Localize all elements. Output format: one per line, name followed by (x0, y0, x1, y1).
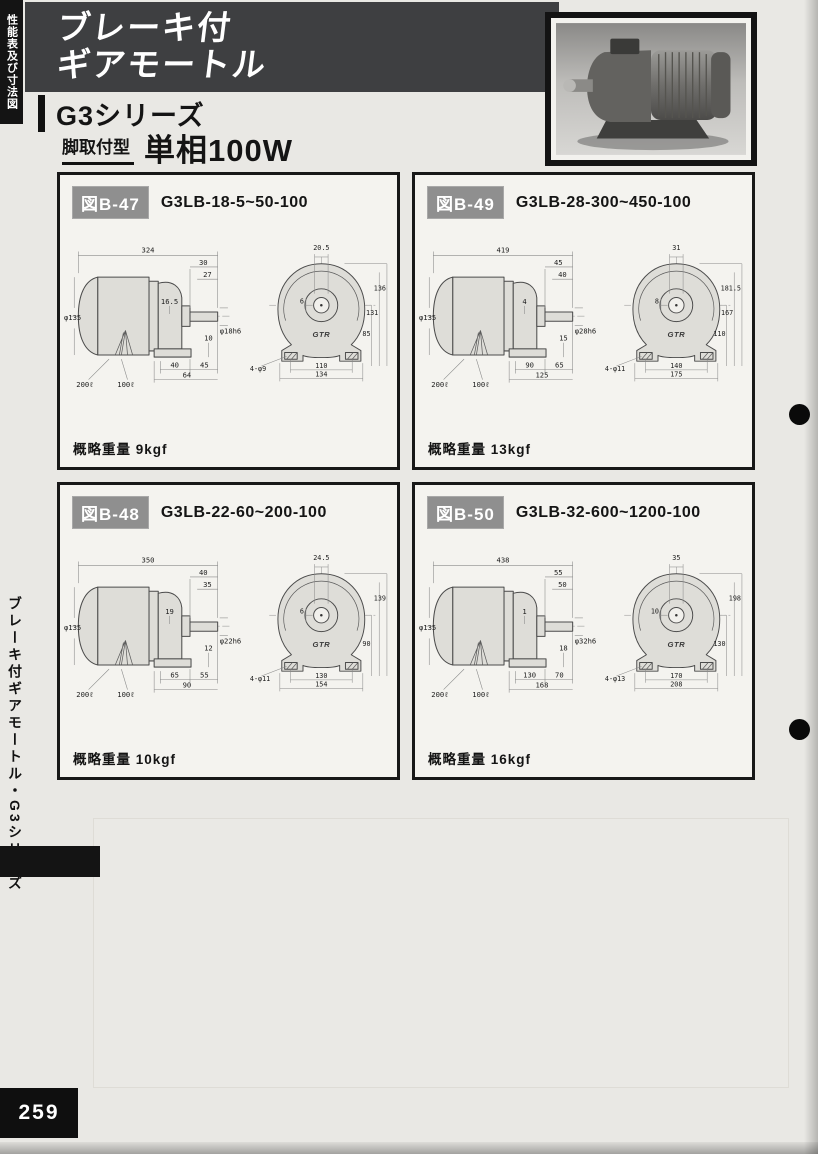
dim-motor-diameter: φ135 (419, 623, 436, 632)
dim-height-overall: 181.5 (721, 285, 741, 293)
dim-keyway-width: 31 (673, 244, 681, 252)
weight-note: 概略重量 10kgf (73, 748, 176, 768)
model-code: G3LB-22-60~200-100 (161, 504, 327, 522)
dim-foot-length: 64 (183, 371, 192, 380)
series-accent-bar (38, 95, 45, 132)
dim-foot-pitch: 65 (170, 670, 179, 679)
dim-height-mid: 131 (366, 309, 378, 317)
shaft-center (320, 614, 323, 617)
punch-hole-bottom (789, 719, 810, 740)
dim-base-width: 154 (316, 681, 328, 689)
dim-key-height: 8 (655, 297, 659, 305)
dim-shaft-step: 27 (203, 270, 212, 279)
dim-foot-length: 125 (535, 371, 548, 380)
dim-height-center: 85 (363, 330, 371, 338)
dim-foot-height: 12 (204, 644, 213, 653)
page-number: 259 (0, 1088, 78, 1138)
label-cable-200: 200ℓ (76, 690, 93, 699)
label-cable-200: 200ℓ (431, 690, 448, 699)
weight-value: 13kgf (491, 442, 531, 457)
gearbox-body (513, 592, 537, 659)
side-view-drawing: 350 40 35 19 φ135 12 φ22h6 65 55 90 200ℓ… (64, 543, 246, 701)
figure-number-badge: 図B-48 (72, 496, 149, 529)
dim-overall-length: 350 (142, 556, 155, 565)
dim-shaft-length: 40 (199, 568, 208, 577)
mounting-foot (509, 349, 546, 357)
label-cable-200: 200ℓ (76, 380, 93, 389)
figure-header: 図B-47 G3LB-18-5~50-100 (72, 186, 385, 219)
page-edge-bottom (0, 1142, 818, 1154)
motor-rear-cover (433, 277, 452, 355)
dim-foot-height: 15 (559, 334, 568, 343)
page-edge-right (804, 0, 818, 1154)
dim-shaft-step: 50 (558, 580, 567, 589)
dim-base-width: 208 (671, 681, 683, 689)
side-view-drawing: 419 45 40 4 φ135 15 φ28h6 90 65 125 200ℓ… (419, 233, 601, 391)
dim-foot-height: 18 (559, 644, 568, 653)
label-cable-100: 100ℓ (117, 690, 134, 699)
weight-label: 概略重量 (428, 752, 486, 767)
photo-motor-foot (597, 120, 709, 138)
drawing-area: 324 30 27 16.5 φ135 10 φ18h6 40 45 64 20… (64, 233, 395, 391)
figure-number-badge: 図B-47 (72, 186, 149, 219)
foot-pad-right (701, 352, 714, 359)
dim-overall-length: 419 (497, 246, 510, 255)
model-code: G3LB-18-5~50-100 (161, 194, 308, 212)
dim-hole-pitch: 130 (316, 672, 328, 680)
dim-shaft-diameter: φ28h6 (575, 327, 597, 336)
motor-rear-cover (78, 587, 97, 665)
dim-keyway-width: 20.5 (314, 244, 330, 252)
bearing-hub (182, 306, 190, 326)
series-title: G3シリーズ (56, 94, 205, 133)
label-mounting-holes: 4-φ11 (250, 675, 270, 683)
weight-label: 概略重量 (73, 752, 131, 767)
bearing-hub (537, 306, 545, 326)
mounting-foot (154, 349, 191, 357)
weight-note: 概略重量 13kgf (428, 438, 531, 458)
drawing-area: 350 40 35 19 φ135 12 φ22h6 65 55 90 200ℓ… (64, 543, 395, 701)
mounting-foot (154, 659, 191, 667)
weight-value: 9kgf (136, 442, 168, 457)
dim-foot-pitch: 130 (523, 670, 536, 679)
front-view-drawing: GTR 24.5 6 139 90 130 (248, 547, 395, 695)
label-cable-200: 200ℓ (431, 380, 448, 389)
figure-grid: 図B-47 G3LB-18-5~50-100 (57, 172, 755, 780)
bleed-through-area (93, 818, 789, 1088)
dim-base-width: 175 (671, 371, 683, 379)
photo-motor-body (651, 50, 717, 120)
dim-overall-length: 324 (142, 246, 155, 255)
dim-height-center: 110 (714, 330, 726, 338)
product-photo-frame (545, 12, 757, 166)
figure-box-b48: 図B-48 G3LB-22-60~200-100 (57, 482, 400, 780)
gearbox-flange (149, 281, 158, 351)
dim-overall-length: 438 (497, 556, 510, 565)
gearbox-body (158, 592, 182, 659)
dim-shaft-offset: 16.5 (161, 297, 178, 306)
dim-hole-pitch: 110 (316, 362, 328, 370)
drawing-area: 438 55 50 1 φ135 18 φ32h6 130 70 168 200… (419, 543, 750, 701)
dim-shaft-step: 40 (558, 270, 567, 279)
dim-hole-pitch: 170 (671, 672, 683, 680)
label-mounting-holes: 4-φ9 (250, 365, 266, 373)
gearbox-flange (504, 281, 513, 351)
catalog-page: 性能表及び寸法図 ブレーキ付 ギアモートル G3シリーズ 脚取付型 単相100W (0, 0, 818, 1154)
page-title-line1: ブレーキ付 (55, 10, 562, 47)
weight-note: 概略重量 9kgf (73, 438, 168, 458)
mounting-foot (509, 659, 546, 667)
dim-key-height: 6 (300, 607, 304, 615)
foot-pad-right (346, 662, 359, 669)
output-shaft (545, 312, 573, 321)
dim-key-height: 6 (300, 297, 304, 305)
shaft-center (675, 304, 678, 307)
dim-foot-to-shaft: 65 (555, 360, 564, 369)
foot-pad-left (285, 352, 298, 359)
mount-type-label: 脚取付型 (62, 133, 134, 165)
figure-number-badge: 図B-50 (427, 496, 504, 529)
motor-rear-cover (78, 277, 97, 355)
gearbox-body (513, 282, 537, 349)
model-code: G3LB-32-600~1200-100 (516, 504, 701, 522)
photo-motor-endcap (711, 52, 730, 118)
dim-keyway-width: 24.5 (314, 554, 330, 562)
weight-label: 概略重量 (428, 442, 486, 457)
punch-hole-top (789, 404, 810, 425)
dim-height-center: 130 (714, 640, 726, 648)
dim-shaft-offset: 4 (522, 297, 526, 306)
weight-note: 概略重量 16kgf (428, 748, 531, 768)
power-rating-label: 単相100W (144, 136, 293, 165)
dim-motor-diameter: φ135 (64, 313, 81, 322)
label-cable-100: 100ℓ (472, 380, 489, 389)
foot-pad-right (701, 662, 714, 669)
dim-foot-to-shaft: 45 (200, 360, 209, 369)
figure-box-b49: 図B-49 G3LB-28-300~450-100 (412, 172, 755, 470)
weight-value: 16kgf (491, 752, 531, 767)
bearing-hub (537, 616, 545, 636)
dim-shaft-diameter: φ18h6 (220, 327, 242, 336)
gtr-logo: GTR (668, 330, 686, 339)
label-cable-100: 100ℓ (117, 380, 134, 389)
subtitle-row: 脚取付型 単相100W (62, 133, 293, 165)
figure-number-badge: 図B-49 (427, 186, 504, 219)
dim-shaft-length: 30 (199, 258, 208, 267)
bearing-hub (182, 616, 190, 636)
front-view-drawing: GTR 35 10 198 130 170 (603, 547, 750, 695)
dim-foot-to-shaft: 55 (200, 670, 209, 679)
gearbox-flange (149, 591, 158, 661)
dim-shaft-offset: 1 (522, 607, 526, 616)
front-view-drawing: GTR 31 8 181.5 167 110 140 (603, 237, 750, 385)
dim-foot-length: 90 (183, 681, 192, 690)
dim-height-center: 90 (363, 640, 371, 648)
dim-foot-to-shaft: 70 (555, 670, 564, 679)
foot-pad-left (285, 662, 298, 669)
side-tab-block (0, 846, 100, 877)
dim-foot-length: 168 (535, 681, 548, 690)
dim-foot-height: 10 (204, 334, 213, 343)
dim-height-overall: 139 (374, 595, 386, 603)
dim-keyway-width: 35 (673, 554, 681, 562)
dim-height-mid: 167 (721, 309, 733, 317)
photo-terminal-box (610, 39, 639, 55)
corner-tab: 性能表及び寸法図 (0, 0, 23, 124)
figure-header: 図B-50 G3LB-32-600~1200-100 (427, 496, 740, 529)
front-view-drawing: GTR 20.5 6 136 131 85 110 (248, 237, 395, 385)
title-banner: ブレーキ付 ギアモートル (25, 2, 559, 92)
drawing-area: 419 45 40 4 φ135 15 φ28h6 90 65 125 200ℓ… (419, 233, 750, 391)
gtr-logo: GTR (313, 640, 331, 649)
gearbox-body (158, 282, 182, 349)
product-photo-image (556, 23, 746, 155)
label-mounting-holes: 4-φ13 (605, 675, 625, 683)
dim-motor-diameter: φ135 (64, 623, 81, 632)
figure-header: 図B-48 G3LB-22-60~200-100 (72, 496, 385, 529)
figure-box-b47: 図B-47 G3LB-18-5~50-100 (57, 172, 400, 470)
foot-pad-right (346, 352, 359, 359)
dim-height-overall: 136 (374, 285, 386, 293)
dim-hole-pitch: 140 (671, 362, 683, 370)
page-title-line2: ギアモートル (55, 47, 562, 84)
label-cable-100: 100ℓ (472, 690, 489, 699)
figure-header: 図B-49 G3LB-28-300~450-100 (427, 186, 740, 219)
dim-key-height: 10 (651, 607, 659, 615)
corner-tab-label: 性能表及び寸法図 (4, 14, 20, 110)
dim-shaft-diameter: φ22h6 (220, 637, 242, 646)
gtr-logo: GTR (313, 330, 331, 339)
dim-base-width: 134 (316, 371, 328, 379)
foot-pad-left (640, 352, 653, 359)
dim-height-overall: 198 (729, 595, 741, 603)
product-photo-mat (551, 18, 751, 160)
dim-shaft-length: 55 (554, 568, 563, 577)
figure-box-b50: 図B-50 G3LB-32-600~1200-100 (412, 482, 755, 780)
gtr-logo: GTR (668, 640, 686, 649)
side-view-drawing: 438 55 50 1 φ135 18 φ32h6 130 70 168 200… (419, 543, 601, 701)
dim-motor-diameter: φ135 (419, 313, 436, 322)
dim-foot-pitch: 40 (170, 360, 179, 369)
dim-shaft-length: 45 (554, 258, 563, 267)
dim-foot-pitch: 90 (525, 360, 534, 369)
series-row: G3シリーズ (38, 94, 205, 133)
side-view-drawing: 324 30 27 16.5 φ135 10 φ18h6 40 45 64 20… (64, 233, 246, 391)
dim-shaft-offset: 19 (165, 607, 174, 616)
motor-rear-cover (433, 587, 452, 665)
dim-shaft-diameter: φ32h6 (575, 637, 597, 646)
gearbox-flange (504, 591, 513, 661)
photo-gearbox (587, 50, 651, 122)
output-shaft (545, 622, 573, 631)
output-shaft (190, 312, 218, 321)
weight-label: 概略重量 (73, 442, 131, 457)
output-shaft (190, 622, 218, 631)
shaft-center (675, 614, 678, 617)
model-code: G3LB-28-300~450-100 (516, 194, 691, 212)
foot-pad-left (640, 662, 653, 669)
label-mounting-holes: 4-φ11 (605, 365, 625, 373)
weight-value: 10kgf (136, 752, 176, 767)
shaft-center (320, 304, 323, 307)
dim-shaft-step: 35 (203, 580, 212, 589)
